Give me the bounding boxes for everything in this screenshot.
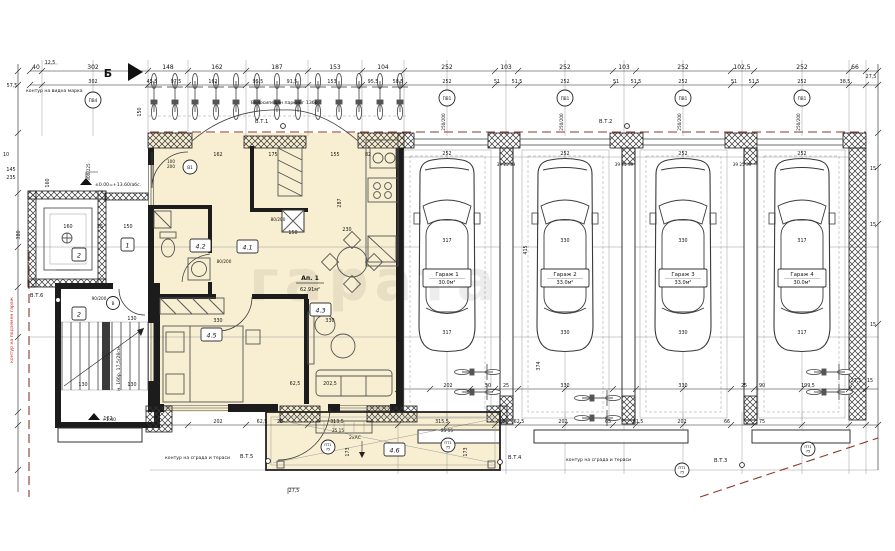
dim-label: 62,5 [514,419,525,425]
dim-label: 380 [16,230,22,239]
dim-label: 175 [268,152,277,158]
bicycle-parking-bottom [455,364,853,426]
dim-label: 61,5 [633,419,644,425]
dim-label: 51,5 [512,79,523,85]
dim-label: 130 [127,382,136,388]
dim-label: 330 [213,318,222,324]
marker-label: В1 [187,165,193,170]
dim-label: 103 [500,64,512,71]
dim-label: 145 [6,167,15,173]
dim-label: 58,5 [393,79,404,85]
dim-label: 51,5 [749,79,760,85]
dim-label: 202 [558,419,567,425]
dim-label: 15 [870,166,876,172]
dim-label: 252 [560,151,569,157]
room-number: 4.2 [195,243,205,251]
dim-label: 40 [32,64,40,71]
dim-labels-top: 12,5 40 302 148 162 187 153 104 252 103 … [32,60,876,85]
dim-label: 150 [123,224,132,230]
dim-label: 330 [678,238,687,244]
bike-parking-note: Велосипеден паркинг 13бр. [251,100,319,106]
dim-label: 97,5 [171,79,182,85]
dim-label: 38,5 [840,79,851,85]
dim-label: 51 [731,79,737,85]
dim-label: 39 25 39 [733,162,752,167]
dim-label: 15 [870,222,876,228]
dim-label: 252 [677,64,689,71]
dim-label: 25 [503,383,509,389]
dim-label: 252 [441,64,453,71]
garage-name: Гараж 2 [553,272,576,278]
dim-label: 330 [560,330,569,336]
dim-label: 330 [325,318,334,324]
dim-label: 252 [678,151,687,157]
dim-label: 51,5 [631,79,642,85]
marker-label: ПТ1 [444,441,451,445]
dim-label: 51 [494,79,500,85]
dim-label: 252 [796,64,808,71]
dim-label: 313,5 [330,419,344,425]
dim-label: 202 [677,419,686,425]
dim-label: 330 [678,383,687,389]
ac-note: 2хАС [349,435,361,441]
dim-label: 162 [211,64,223,71]
survey-point: В.Т.3 [714,458,727,464]
marker-label: ПВ1 [798,96,807,101]
dim-label: 95,5 [368,79,379,85]
dim-label: 25 15 [332,428,344,433]
marker-size: 80/200 [271,217,286,222]
garage-area: 33.0м² [675,280,692,286]
dim-label: 202,5 [323,381,337,387]
dim-label: 162 [213,152,222,158]
level-mark-icon [88,413,100,420]
contour-note-red-side: контур на подземен гараж [10,297,15,363]
dim-label: 230 [342,227,351,233]
survey-point: В.Т.5 [240,454,253,460]
dim-label: 12,5 [45,60,56,66]
dim-label: 62,5 [290,381,301,387]
dim-label: 415 [523,245,529,254]
dim-label: 252 [442,151,451,157]
dim-label: 302 [88,79,97,85]
dim-label: 160 [45,178,51,187]
dim-label: 104 [377,64,389,71]
dim-label: 153 [329,64,341,71]
dim-label: 15 [867,378,873,384]
dim-label: 57,5 [7,83,18,89]
marker-size: 75 [680,471,685,475]
room-number: 4.6 [389,447,399,455]
dim-label: 173 [463,447,469,456]
dim-label: 252 [560,79,569,85]
dim-label: 27,5 [289,488,300,494]
contour-note-bottom-right: контур на сграда и тераси [566,458,631,463]
marker-label: ПВ1 [443,96,452,101]
marker-size: 90/200 [92,296,107,301]
dim-label: 252 [797,151,806,157]
garage-area: 33.0м² [557,280,574,286]
dim-label: 66 [724,419,730,425]
apartment-area: 62.91м² [300,287,320,293]
dim-label: 235 [6,175,15,181]
dim-label: 25 [277,419,283,425]
dim-label: 25 [499,419,505,425]
garage-name: Гараж 3 [671,272,694,278]
marker-size: 250/200 [559,113,564,131]
dim-label: 25 15 [441,428,453,433]
dim-label: 155 [330,152,339,158]
dim-label: 317 [797,238,806,244]
marker-size: 250/200 [677,113,682,131]
dim-label: 317 [442,330,451,336]
dim-label: 102,5 [733,64,750,71]
dim-label: 317 [442,238,451,244]
staircase [62,322,148,390]
room-number: 4.1 [242,244,252,252]
dim-label: 252 [442,79,451,85]
contour-note-top: контур на видна марка [26,89,83,94]
dim-label: 202 [213,419,222,425]
dim-label: 330 [678,330,687,336]
dim-label: 302 [87,64,99,71]
dim-label: 317 [797,330,806,336]
survey-point: В.Т.4 [508,455,522,461]
dim-label: 62,5 [257,419,268,425]
marker-size: 75 [446,446,451,450]
dim-label: 91,5 [287,79,298,85]
room-number: 2 [77,252,81,260]
dim-label: 10 [3,152,9,158]
marker-label: В [112,301,115,306]
survey-point: В.Т.1 [255,119,268,125]
dim-label: 330 [560,238,569,244]
dim-label: 150 [288,230,297,236]
dim-label: 15 [870,322,876,328]
contour-note-bottom-left: контур на сграда и тераси [165,456,230,461]
dim-label: 90 [759,383,765,389]
dim-label: 103 [618,64,630,71]
level-stair: +1.40 [102,417,116,423]
dim-label: 315,5 [435,419,449,425]
room-number: 2 [77,311,81,319]
section-mark-icon [128,63,143,81]
dim-label: 65 [605,419,611,425]
dim-label: 162 [208,79,217,85]
dim-label: 150 [137,107,143,116]
garage-area: 30.0м² [794,280,811,286]
dim-label: 66 [851,64,859,71]
dim-label: 82 [365,152,371,158]
dim-label: 287 [337,198,343,207]
apartment-name: Ап. 1 [301,275,319,282]
dim-label: 75 [759,419,765,425]
marker-label: ПВ4 [89,98,98,103]
dim-label: 51 [613,79,619,85]
dim-label: 95,5 [253,79,264,85]
dim-label: 187 [271,64,283,71]
floor-plan-canvas: гарата 12,5 40 302 148 162 187 153 104 2… [0,0,895,551]
marker-label: ПТ1 [324,443,331,447]
dim-label: 252 [559,64,571,71]
survey-point: В.Т.2 [599,119,612,125]
garage-area: 30.0м² [439,280,456,286]
dim-label: 252 [678,79,687,85]
marker-label: ПВ1 [561,96,570,101]
marker-label: ПТ1 [804,445,811,449]
dim-label: 39 25 39 [615,162,634,167]
marker-size: 250/200 [796,113,801,131]
dim-label: 25 [97,224,103,230]
dim-label: 130 [78,382,87,388]
dim-label: 45,5 [147,79,158,85]
dim-label: 374 [536,361,542,370]
dim-label: 27,5 [866,74,877,80]
dim-label: 39 25 39 [497,162,516,167]
dim-label: 252 [797,79,806,85]
marker-size: 75 [806,450,811,454]
floor-plan-drawing: гарата 12,5 40 302 148 162 187 153 104 2… [0,0,895,551]
stair-count-note: н. 16бр. 17,5/28см. [116,345,122,391]
dim-label: 199,5 [801,383,815,389]
survey-point: В.Т.6 [30,293,43,299]
marker-size: 200 [167,164,175,169]
marker-label: ПТ1 [678,466,685,470]
room-number: 1 [125,242,129,250]
dim-label: 130 [127,316,136,322]
marker-size: 250/200 [441,113,446,131]
garage-name: Гараж 1 [435,272,458,278]
marker-size: 80/200 [217,259,232,264]
dim-label: 153 [327,79,336,85]
garage-name: Гараж 4 [790,272,814,278]
dim-label: 50 [485,383,491,389]
dim-label: 160 [63,224,72,230]
dim-label: 27,5 [851,378,862,384]
room-number: 4.3 [315,307,325,315]
dim-label: 25 [741,383,747,389]
dim-label: 173 [345,447,351,456]
marker-label: ПВ1 [679,96,688,101]
axis-label-b: Б [104,67,112,80]
dim-label: 330 [560,383,569,389]
room-number: 4.5 [206,332,216,340]
dim-label: 148 [162,64,174,71]
level-main: ±0.00=+13.60/абс. [95,182,141,188]
dim-label: 202 [443,383,452,389]
marker-size: 75 [326,448,331,452]
